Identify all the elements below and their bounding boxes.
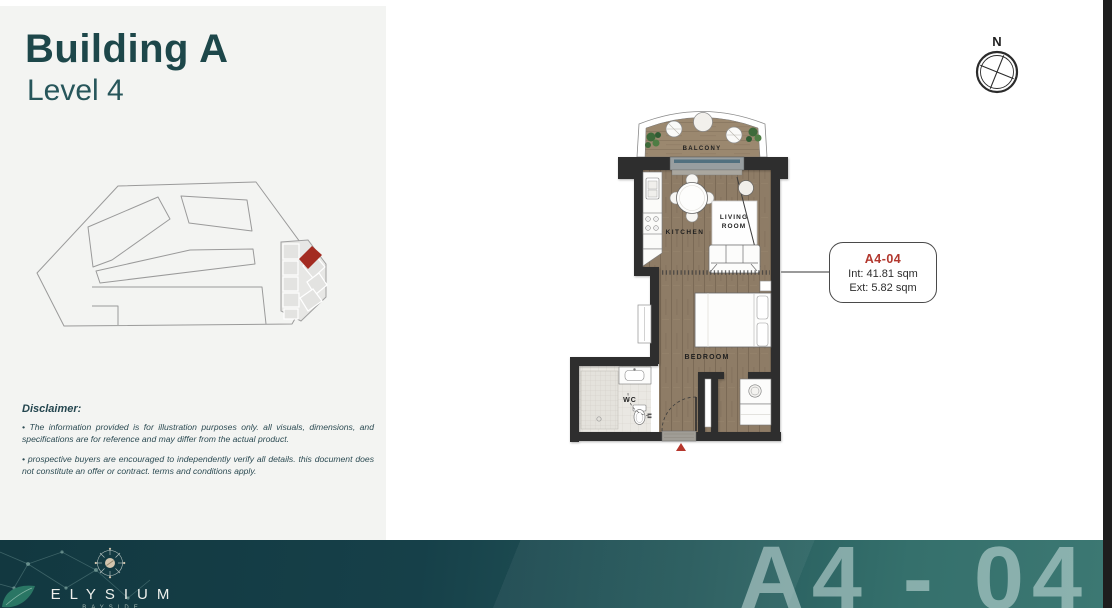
footer-banner: ELYSIUM BAYSIDE A4 - 04 (0, 540, 1104, 608)
disclaimer-bullet-2: • prospective buyers are encouraged to i… (22, 453, 374, 478)
balcony: BALCONY (637, 112, 767, 158)
nightstand (760, 281, 771, 291)
compass: N (975, 34, 1019, 99)
ceiling-fan-icon (739, 181, 754, 196)
kitchen-counter (643, 172, 662, 266)
unit-info-card: A4-04 Int: 41.81 sqm Ext: 5.82 sqm (829, 242, 937, 303)
title-block: Building A Level 4 (25, 26, 228, 108)
disclaimer-bullet-1: • The information provided is for illust… (22, 421, 374, 446)
building-outline (37, 182, 322, 326)
leader-line (781, 271, 829, 273)
shower-area (581, 371, 618, 429)
brand-name: ELYSIUM (0, 586, 220, 603)
unit-number: A4-04 (865, 252, 902, 266)
closet-slab (705, 379, 711, 427)
sofa (709, 245, 760, 273)
brand-logo: ELYSIUM BAYSIDE (0, 547, 220, 608)
washing-machine (749, 385, 761, 397)
living-room-label-2: ROOM (722, 223, 747, 230)
disclaimer-heading: Disclaimer: (22, 403, 374, 415)
pillow (757, 296, 768, 319)
balcony-label: BALCONY (683, 146, 722, 152)
right-edge-strip (1103, 0, 1112, 608)
compass-rose-icon (975, 50, 1019, 94)
dining-table (677, 183, 708, 214)
bedroom-label: BEDROOM (685, 354, 730, 361)
pillow (757, 323, 768, 346)
page-title: Building A (25, 26, 228, 72)
kitchen-stove (643, 213, 662, 234)
entrance-marker (676, 443, 686, 451)
sliding-door (670, 157, 744, 175)
floor-plan: BALCONY (550, 95, 810, 465)
unit-exterior-area: Ext: 5.82 sqm (849, 282, 916, 294)
page-subtitle: Level 4 (27, 74, 228, 108)
unit-cluster (281, 240, 327, 321)
kitchen-label: KITCHEN (666, 229, 705, 236)
brochure-page: Building A Level 4 (0, 0, 1112, 608)
compass-north-label: N (975, 34, 1019, 49)
wc-label: WC (623, 397, 637, 404)
balcony-table (694, 113, 713, 132)
living-room-label-1: LIVING (720, 214, 748, 221)
unit-code-watermark: A4 - 04 (739, 540, 1090, 608)
brand-compass-icon (94, 547, 126, 579)
wash-basin (625, 371, 644, 381)
unit-interior-area: Int: 41.81 sqm (848, 268, 918, 280)
key-plan (0, 170, 360, 362)
disclaimer: Disclaimer: • The information provided i… (22, 403, 374, 485)
threshold (662, 431, 696, 441)
